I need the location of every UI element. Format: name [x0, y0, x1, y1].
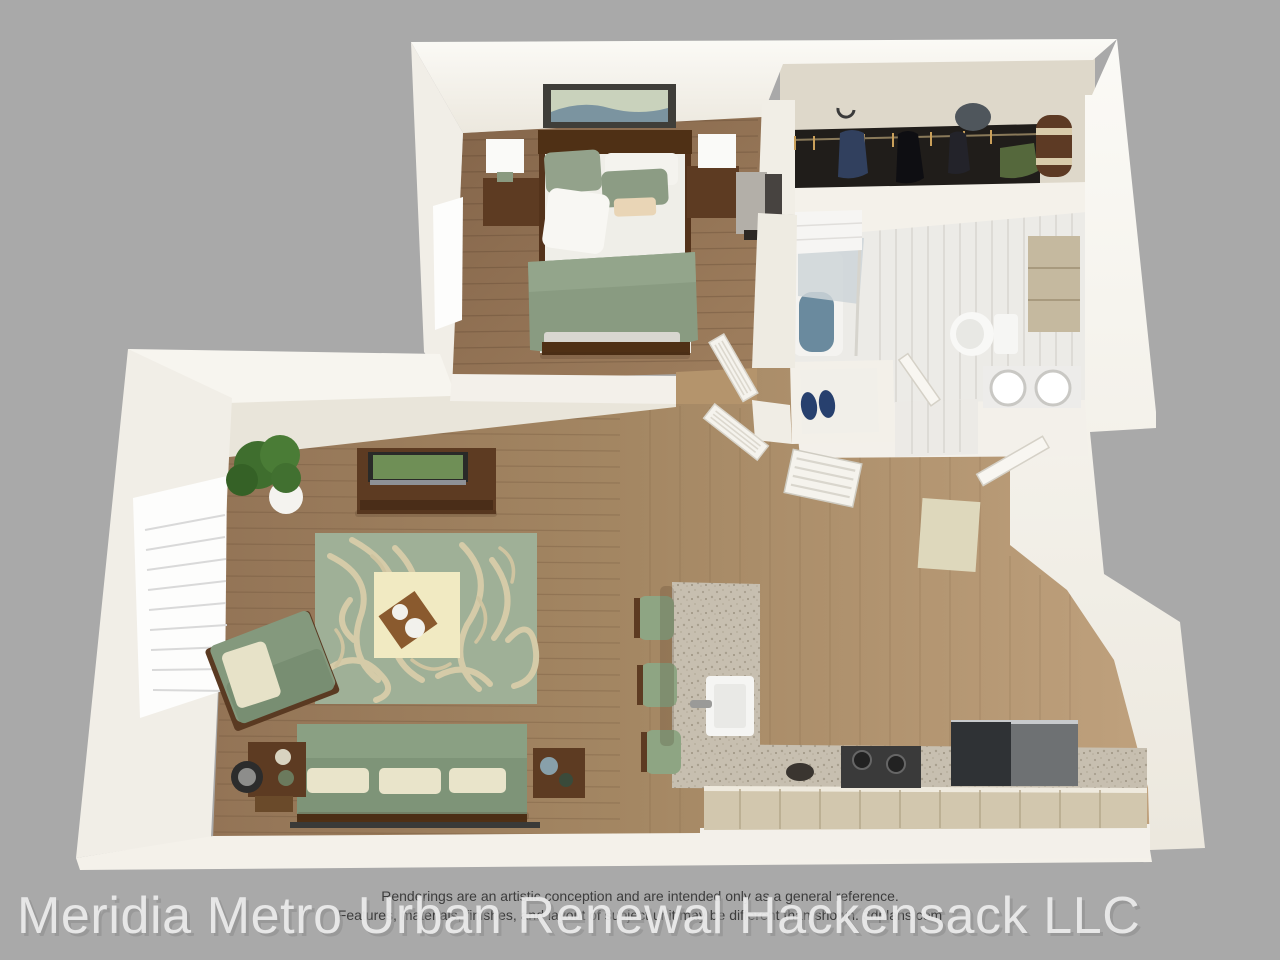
- svg-text:Meridia Metro Urban Renewal Ha: Meridia Metro Urban Renewal Hackensack L…: [17, 887, 1140, 945]
